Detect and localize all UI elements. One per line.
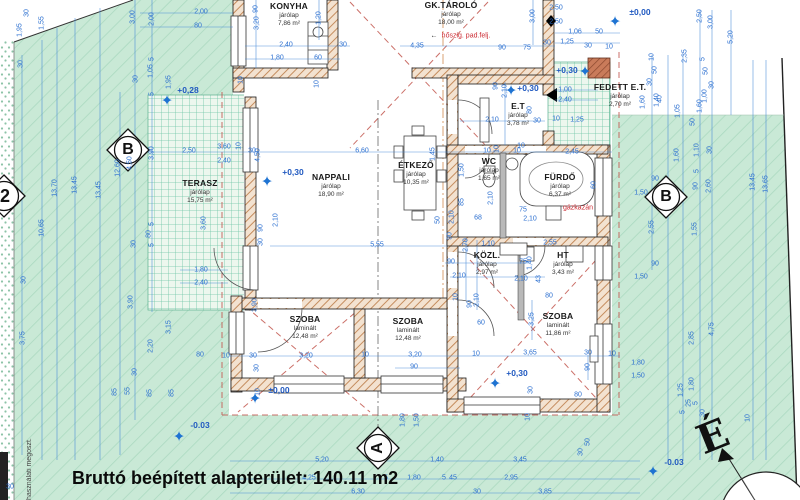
dim-label: 60 <box>477 320 485 327</box>
dim-label: 30 <box>584 43 592 50</box>
room-label: SZOBAlaminált11,86 m² <box>543 311 574 338</box>
dim-label: 2,70 <box>463 238 470 252</box>
level-value: +0,30 <box>506 369 528 378</box>
dim-label: 10,65 <box>39 219 46 237</box>
dim-label: 2,10 <box>514 276 528 283</box>
level-value: +0,30 <box>282 168 304 177</box>
dim-label: 30 <box>132 368 139 376</box>
room-area: 15,75 m² <box>182 197 217 205</box>
dim-label: 5 <box>149 57 156 61</box>
dim-label: 43 <box>536 275 543 283</box>
dim-label: 3,15 <box>166 320 173 334</box>
dim-label: 2,10 <box>488 191 495 205</box>
dim-label: 2,35 <box>682 49 689 63</box>
dim-label: 3,00 <box>708 15 715 29</box>
section-marker-b-left: B <box>122 142 134 158</box>
room-area: 12,48 m² <box>290 333 321 341</box>
dim-label: 1,95 <box>17 23 24 37</box>
entry-pillar <box>588 58 610 78</box>
dim-label: 3,00 <box>530 9 537 23</box>
room-label: WCjárólap1,65 m² <box>478 156 500 183</box>
dim-label: 1,60 <box>697 99 704 113</box>
dim-label: 2,55 <box>543 240 557 247</box>
dim-label: 1,55 <box>39 16 46 30</box>
level-marker-icon: ✦ <box>489 377 502 392</box>
room-floor: járólap <box>474 261 501 269</box>
dim-label: 85 <box>147 389 154 397</box>
grid-marker-2: 2 <box>0 187 10 205</box>
room-name: TERASZ <box>182 178 217 189</box>
level-marker-icon: ✦ <box>173 430 186 445</box>
dim-label: 30 <box>533 118 541 125</box>
dim-label: 12,60 <box>115 159 122 177</box>
dim-label: 2,40 <box>558 97 572 104</box>
dim-label: 1,80 <box>270 55 284 62</box>
dim-label: 30 <box>528 386 535 394</box>
dim-label: 80 <box>146 230 153 238</box>
room-area: 12,48 m² <box>393 335 424 343</box>
room-area: 1,65 m² <box>478 175 500 183</box>
dim-label: 30 <box>18 60 25 68</box>
dim-label: 60 <box>314 55 322 62</box>
dim-label: 30 <box>24 9 31 17</box>
dim-label: 10 <box>552 116 560 123</box>
room-area: 2,97 m² <box>474 269 501 277</box>
dim-label: 90 <box>693 182 700 190</box>
room-floor: járólap <box>270 12 308 20</box>
room-floor: laminált <box>290 325 321 333</box>
dim-label: 5,20 <box>728 30 735 44</box>
room-label: FEDETT E.T.járólap2,70 m² <box>594 82 646 109</box>
room-label: KÖZL.járólap2,97 m² <box>474 250 501 277</box>
dim-label: 4,50 <box>127 156 134 170</box>
level-marker-icon: ✦ <box>505 84 518 99</box>
room-label: HTjárólap3,43 m² <box>552 250 574 277</box>
dim-label: 30 <box>258 238 265 246</box>
dim-label: 30 <box>249 353 257 360</box>
dim-label: 90 <box>467 300 474 308</box>
dim-label: 3,60 <box>217 144 231 151</box>
room-area: 6,37 m² <box>544 191 575 199</box>
room-area: 18,90 m² <box>312 191 350 199</box>
dim-label: 10 <box>605 44 613 51</box>
dim-label: 90 <box>258 224 265 232</box>
dim-label: 80 <box>194 23 202 30</box>
room-area: 18,00 m² <box>425 19 478 27</box>
dim-label: 25 <box>686 399 693 407</box>
dim-label: 2,85 <box>689 331 696 345</box>
dim-label: 60 <box>591 181 598 189</box>
dim-label: 1,40 <box>527 256 534 270</box>
dim-label: 5 <box>693 401 700 405</box>
dim-label: 1,40 <box>654 93 661 107</box>
dim-label: 10 <box>649 53 656 61</box>
dim-label: 75 <box>519 207 527 214</box>
dim-label: 90 <box>253 5 260 13</box>
dim-label: 10 <box>236 142 243 150</box>
dim-label: 5 <box>149 222 156 226</box>
dim-label: 80 <box>545 293 553 300</box>
dim-label: 85 <box>169 389 176 397</box>
dim-label: 3,20 <box>408 352 422 359</box>
room-area: 7,86 m² <box>270 20 308 28</box>
dim-label: 2,10 <box>449 210 456 224</box>
level-value: -0.03 <box>664 458 683 467</box>
room-name: SZOBA <box>290 314 321 325</box>
dim-label: 50 <box>703 67 710 75</box>
dim-label: 1,40 <box>430 457 444 464</box>
dim-label: 10 <box>361 352 369 359</box>
gas-boiler <box>546 206 561 220</box>
room-name: FEDETT E.T. <box>594 82 646 93</box>
dim-label: 2,10 <box>273 213 280 227</box>
room-name: SZOBA <box>543 311 574 322</box>
dim-label: 30 <box>254 364 261 372</box>
room-area: 11,86 m² <box>543 330 574 338</box>
dim-label: 4,75 <box>709 322 716 336</box>
level-value: ±0,00 <box>629 8 650 17</box>
dim-label: 13,45 <box>750 173 757 191</box>
dim-label: 1,06 <box>568 29 582 36</box>
dim-label: 30 <box>473 489 481 496</box>
room-name: HT <box>552 250 574 261</box>
dim-label: 5 <box>700 57 707 61</box>
dim-label: 2,10 <box>485 117 499 124</box>
room-area: 3,78 m² <box>507 120 529 128</box>
room-name: NAPPALI <box>312 172 350 183</box>
dim-label: 1,55 <box>692 222 699 236</box>
washbasin <box>506 158 518 170</box>
level-marker-icon: ✦ <box>609 15 622 30</box>
dim-label: 2,60 <box>706 179 713 193</box>
dim-label: 75 <box>523 45 531 52</box>
dim-label: 2,50 <box>549 19 563 26</box>
dim-label: 90 <box>651 176 659 183</box>
dim-label: 10 <box>494 145 501 153</box>
level-marker-icon: ✦ <box>579 65 592 80</box>
dim-label: 2,50 <box>549 5 563 12</box>
dim-label: 90 <box>493 82 500 90</box>
dim-label: 10 <box>453 293 460 301</box>
dim-label: 1,50 <box>634 274 648 281</box>
room-label: KONYHAjárólap7,86 m² <box>270 1 308 28</box>
room-floor: laminált <box>543 322 574 330</box>
dim-label: 3,85 <box>538 489 552 496</box>
dim-label: 2,10 <box>452 273 466 280</box>
dim-label: 3,45 <box>513 457 527 464</box>
dim-label: 85 <box>112 388 119 396</box>
dim-label: 2,55 <box>649 220 656 234</box>
room-floor: járólap <box>398 171 434 179</box>
dim-label: 2,45 <box>565 149 579 156</box>
dim-label: 4,50 <box>255 148 262 162</box>
dim-label: 1,45 <box>430 147 437 161</box>
room-name: GK.TÁROLÓ <box>425 0 478 11</box>
dim-label: 2,50 <box>697 9 704 23</box>
room-floor: járólap <box>312 183 350 191</box>
room-label: TERASZjárólap15,75 m² <box>182 178 217 205</box>
dim-label: 50 <box>595 29 603 36</box>
dim-label: 30 <box>543 40 551 47</box>
dim-label: 30 <box>707 146 714 154</box>
dim-label: 10 <box>525 413 532 421</box>
dim-label: 5 <box>442 475 446 482</box>
floor-plan-canvas: 301,951,55303,002,002,008051,05301,95590… <box>0 0 800 500</box>
room-name: WC <box>478 156 500 167</box>
dim-label: 50 <box>652 66 659 74</box>
dim-label: 1,25 <box>570 117 584 124</box>
dim-label: 3,90 <box>252 298 259 312</box>
room-floor: járólap <box>425 11 478 19</box>
dim-label: 30 <box>21 276 28 284</box>
level-value: -0.03 <box>190 421 209 430</box>
room-floor: járólap <box>182 189 217 197</box>
room-area: 10,35 m² <box>398 179 434 187</box>
dim-label: 2,20 <box>148 339 155 353</box>
dim-label: 2,40 <box>279 42 293 49</box>
dim-label: 2,40 <box>217 158 231 165</box>
room-name: ÉTKEZŐ <box>398 160 434 171</box>
level-value: +0,30 <box>517 84 539 93</box>
dim-label: 90 <box>447 232 454 240</box>
dim-label: 1,95 <box>166 75 173 89</box>
dim-label: 1,20 <box>316 11 323 25</box>
dim-label: 3,00 <box>130 10 137 24</box>
dim-label: 5,55 <box>370 242 384 249</box>
dim-label: 5,20 <box>315 457 329 464</box>
dim-label: 2,40 <box>194 280 208 287</box>
dim-label: 85 <box>459 198 466 206</box>
dim-label: 5 <box>694 169 701 173</box>
dim-label: 6,30 <box>351 489 365 496</box>
room-area: 3,43 m² <box>552 269 574 277</box>
dim-label: 30 <box>709 81 716 89</box>
room-label: ÉTKEZŐjárólap10,35 m² <box>398 160 434 187</box>
dim-label: 30 <box>578 448 585 456</box>
dim-label: 3,25 <box>529 312 536 326</box>
dim-label: 2,10 <box>474 293 481 307</box>
dim-label: 3,20 <box>254 16 261 30</box>
dim-label: 30 <box>131 240 138 248</box>
dim-label: 1,80 <box>689 377 696 391</box>
gross-area-text: Bruttó beépített alapterület: 140.11 m2 <box>72 468 398 489</box>
dim-label: 10 <box>513 148 521 155</box>
room-area: 2,70 m² <box>594 101 646 109</box>
dim-label: 10 <box>745 414 752 422</box>
dim-label: 1,00 <box>558 87 572 94</box>
dim-label: 4,35 <box>410 43 424 50</box>
dim-label: 80 <box>196 352 204 359</box>
dim-label: 13,45 <box>96 181 103 199</box>
dim-label: 10 <box>472 351 480 358</box>
dim-label: 45 <box>449 475 457 482</box>
dim-label: 1,10 <box>481 241 495 248</box>
room-floor: járólap <box>552 261 574 269</box>
dim-label: 10 <box>238 76 245 84</box>
level-value: +0,28 <box>177 86 199 95</box>
dim-label: 13,45 <box>72 176 79 194</box>
dim-label: 80 <box>574 392 582 399</box>
dim-label: 1,05 <box>675 104 682 118</box>
dim-label: 5 <box>680 410 687 414</box>
room-name: SZOBA <box>393 316 424 327</box>
dim-label: 10 <box>483 148 491 155</box>
section-marker-b-right: B <box>660 189 672 205</box>
dim-label: 30 <box>584 350 592 357</box>
dim-label: 30 <box>339 42 347 49</box>
dim-label: 10 <box>222 353 230 360</box>
room-name: KÖZL. <box>474 250 501 261</box>
dim-label: 1,50 <box>634 190 648 197</box>
dim-label: 3,90 <box>128 295 135 309</box>
dim-label: 3,65 <box>523 350 537 357</box>
dim-label: 30 <box>133 75 140 83</box>
dim-label: 10 <box>608 351 616 358</box>
dim-label: 1,50 <box>631 373 645 380</box>
dim-label: 1,50 <box>414 413 421 427</box>
room-label: GK.TÁROLÓjárólap18,00 m² <box>425 0 478 27</box>
dim-label: 2,95 <box>504 475 518 482</box>
dim-label: 2,00 <box>149 12 156 26</box>
dim-label: 90 <box>498 45 506 52</box>
level-value: +0,30 <box>556 66 578 75</box>
dim-label: 30 <box>6 484 14 491</box>
dim-label: 1,05 <box>148 64 155 78</box>
dim-label: 1,80 <box>407 475 421 482</box>
room-label: E.Tjárólap3,78 m² <box>507 101 529 128</box>
annotation-text: hőszig. pad.felj. <box>442 33 491 40</box>
room-label: SZOBAlaminált12,48 m² <box>290 314 321 341</box>
dim-label: 1,25 <box>560 39 574 46</box>
room-floor: járólap <box>594 93 646 101</box>
room-name: E.T <box>507 101 529 112</box>
dim-label: 1,80 <box>194 267 208 274</box>
dim-label: 6,60 <box>355 148 369 155</box>
annotation-text: gázkazán <box>563 205 593 212</box>
dim-label: 90 <box>651 261 659 268</box>
dim-label: 30 <box>647 78 654 86</box>
dim-label: 3,75 <box>20 331 27 345</box>
level-marker-icon: ✦ <box>647 465 660 480</box>
dim-label: 1,60 <box>674 148 681 162</box>
dim-label: 68 <box>474 215 482 222</box>
dim-label: 50 <box>585 438 592 446</box>
scale-bar <box>0 452 8 500</box>
room-label: NAPPALIjárólap18,90 m² <box>312 172 350 199</box>
dim-label: 1,80 <box>400 413 407 427</box>
section-marker-a: A <box>370 442 386 454</box>
dim-label: 90 <box>410 364 418 371</box>
level-marker-icon: ✦ <box>161 94 174 109</box>
dim-label: 5 <box>149 92 156 96</box>
room-name: KONYHA <box>270 1 308 12</box>
dim-label: 2,50 <box>182 148 196 155</box>
dim-label: 55 <box>125 387 132 395</box>
dim-label: 3,60 <box>201 216 208 230</box>
dim-label: 2,00 <box>194 9 208 16</box>
dim-label: 90 <box>585 363 592 371</box>
room-label: SZOBAlaminált12,48 m² <box>393 316 424 343</box>
room-floor: járólap <box>478 167 500 175</box>
dim-label: 1,80 <box>631 360 645 367</box>
side-note-text: használati megoszt. <box>26 416 33 500</box>
level-marker-icon: ✦ <box>261 175 274 190</box>
dim-label: 13,65 <box>763 175 770 193</box>
dim-label: 5 <box>149 243 156 247</box>
annotation-text: ← <box>431 33 438 40</box>
dim-label: 50 <box>435 216 442 224</box>
level-value: ±0,00 <box>268 386 289 395</box>
room-floor: járólap <box>507 112 529 120</box>
dim-label: 1,25 <box>678 383 685 397</box>
room-name: FÜRDŐ <box>544 172 575 183</box>
dim-label: 1,50 <box>459 163 466 177</box>
level-marker-icon: ✦ <box>249 392 262 407</box>
dim-label: 1,10 <box>694 143 701 157</box>
room-label: FÜRDŐjárólap6,37 m² <box>544 172 575 199</box>
dim-label: 13,70 <box>52 179 59 197</box>
dim-label: 2,10 <box>523 216 537 223</box>
room-floor: járólap <box>544 183 575 191</box>
dim-label: 10 <box>314 80 321 88</box>
dim-label: 3,20 <box>299 353 313 360</box>
dim-label: 50 <box>690 118 697 126</box>
dim-label: 90 <box>447 259 455 266</box>
dim-label: 3,90 <box>149 146 156 160</box>
room-floor: laminált <box>393 327 424 335</box>
